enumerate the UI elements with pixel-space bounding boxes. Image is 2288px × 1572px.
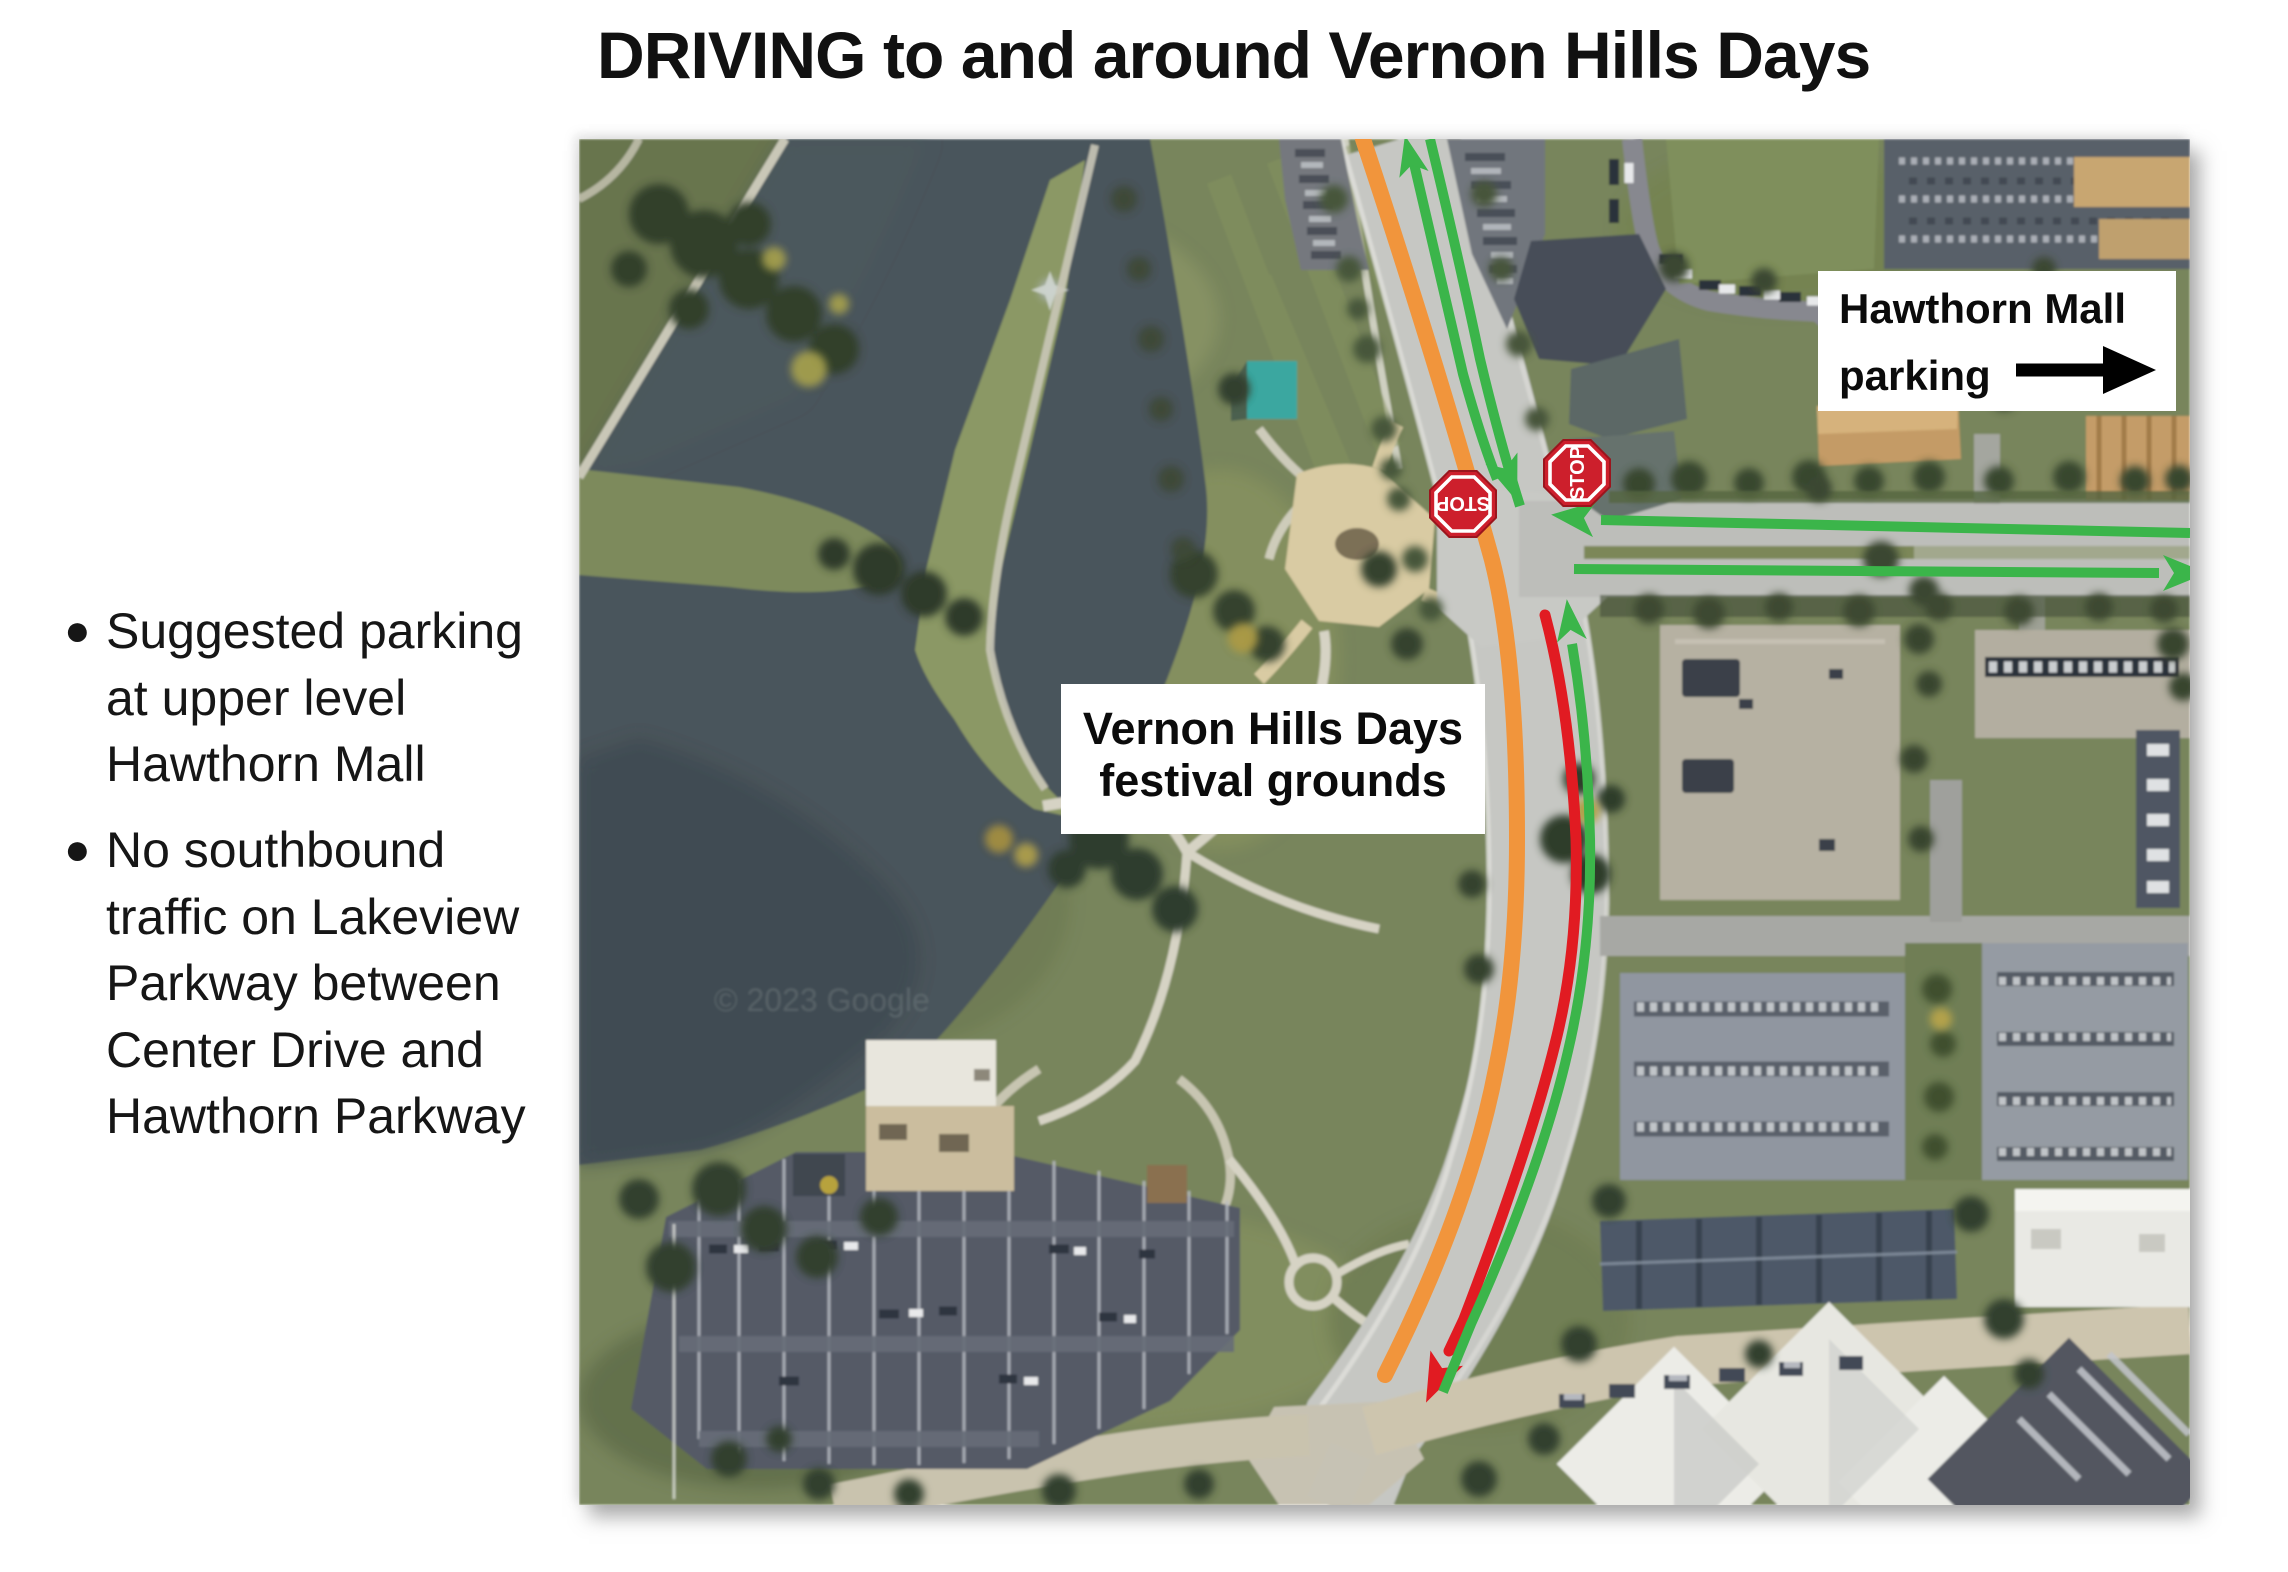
svg-text:festival grounds: festival grounds: [1099, 755, 1447, 806]
svg-text:Hawthorn Mall: Hawthorn Mall: [1839, 285, 2126, 332]
svg-text:STOP: STOP: [1436, 492, 1490, 514]
svg-text:Vernon Hills Days: Vernon Hills Days: [1083, 703, 1463, 754]
svg-text:© 2023 Google: © 2023 Google: [714, 982, 930, 1018]
svg-text:STOP: STOP: [1567, 446, 1589, 500]
svg-text:parking: parking: [1839, 352, 1991, 399]
